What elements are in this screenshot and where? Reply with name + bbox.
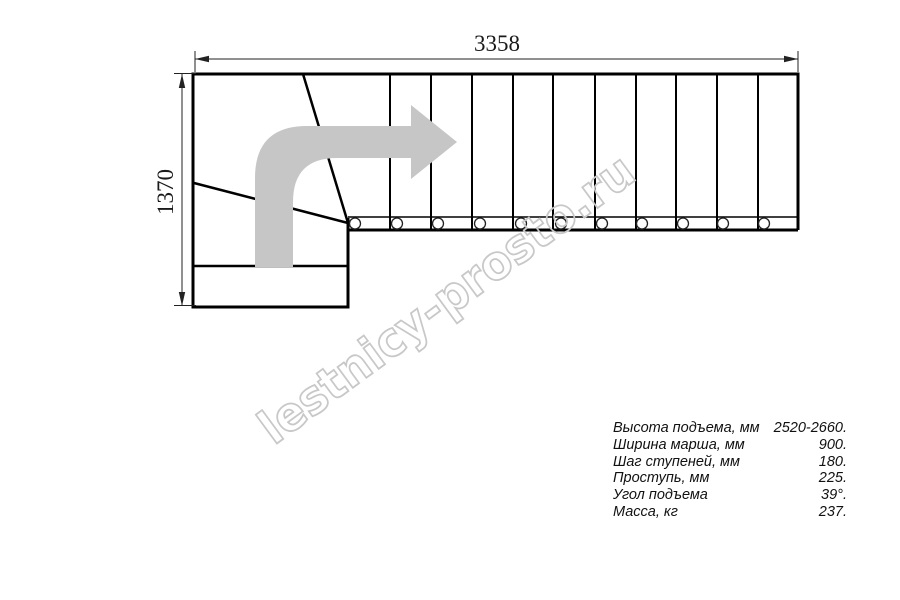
dimension-width-label: 3358	[437, 31, 557, 57]
spec-label: Высота подъема, мм	[613, 420, 760, 437]
baluster-circle	[678, 218, 689, 229]
spec-value: 39°.	[821, 487, 847, 504]
baluster-circle	[433, 218, 444, 229]
spec-label: Угол подъема	[613, 487, 708, 504]
direction-arrow	[255, 105, 457, 267]
spec-row-tread: Проступь, мм 225.	[613, 470, 847, 487]
baluster-circle	[392, 218, 403, 229]
spec-row-mass: Масса, кг 237.	[613, 504, 847, 521]
spec-label: Ширина марша, мм	[613, 437, 745, 454]
spec-value: 237.	[819, 504, 847, 521]
baluster-circle	[637, 218, 648, 229]
spec-label: Масса, кг	[613, 504, 678, 521]
spec-row-step: Шаг ступеней, мм 180.	[613, 454, 847, 471]
dim-arrow-left	[195, 56, 209, 62]
spec-row-width: Ширина марша, мм 900.	[613, 437, 847, 454]
spec-label: Шаг ступеней, мм	[613, 454, 740, 471]
spec-row-height: Высота подъема, мм 2520-2660.	[613, 420, 847, 437]
spec-row-angle: Угол подъема 39°.	[613, 487, 847, 504]
spec-value: 180.	[819, 454, 847, 471]
dimension-height-label: 1370	[153, 132, 179, 252]
spec-value: 225.	[819, 470, 847, 487]
dim-arrow-down	[179, 292, 185, 306]
spec-table: Высота подъема, мм 2520-2660. Ширина мар…	[613, 420, 847, 521]
staircase-drawing: lestnicy-prosto.ru 3358 1370 Высота подъ…	[0, 0, 900, 600]
spec-value: 2520-2660.	[774, 420, 847, 437]
baluster-circle	[759, 218, 770, 229]
spec-value: 900.	[819, 437, 847, 454]
baluster-circle	[350, 218, 361, 229]
spec-label: Проступь, мм	[613, 470, 709, 487]
dim-arrow-right	[784, 56, 798, 62]
baluster-circle	[718, 218, 729, 229]
baluster-circle	[475, 218, 486, 229]
dim-arrow-up	[179, 74, 185, 88]
watermark-text: lestnicy-prosto.ru	[248, 144, 645, 456]
